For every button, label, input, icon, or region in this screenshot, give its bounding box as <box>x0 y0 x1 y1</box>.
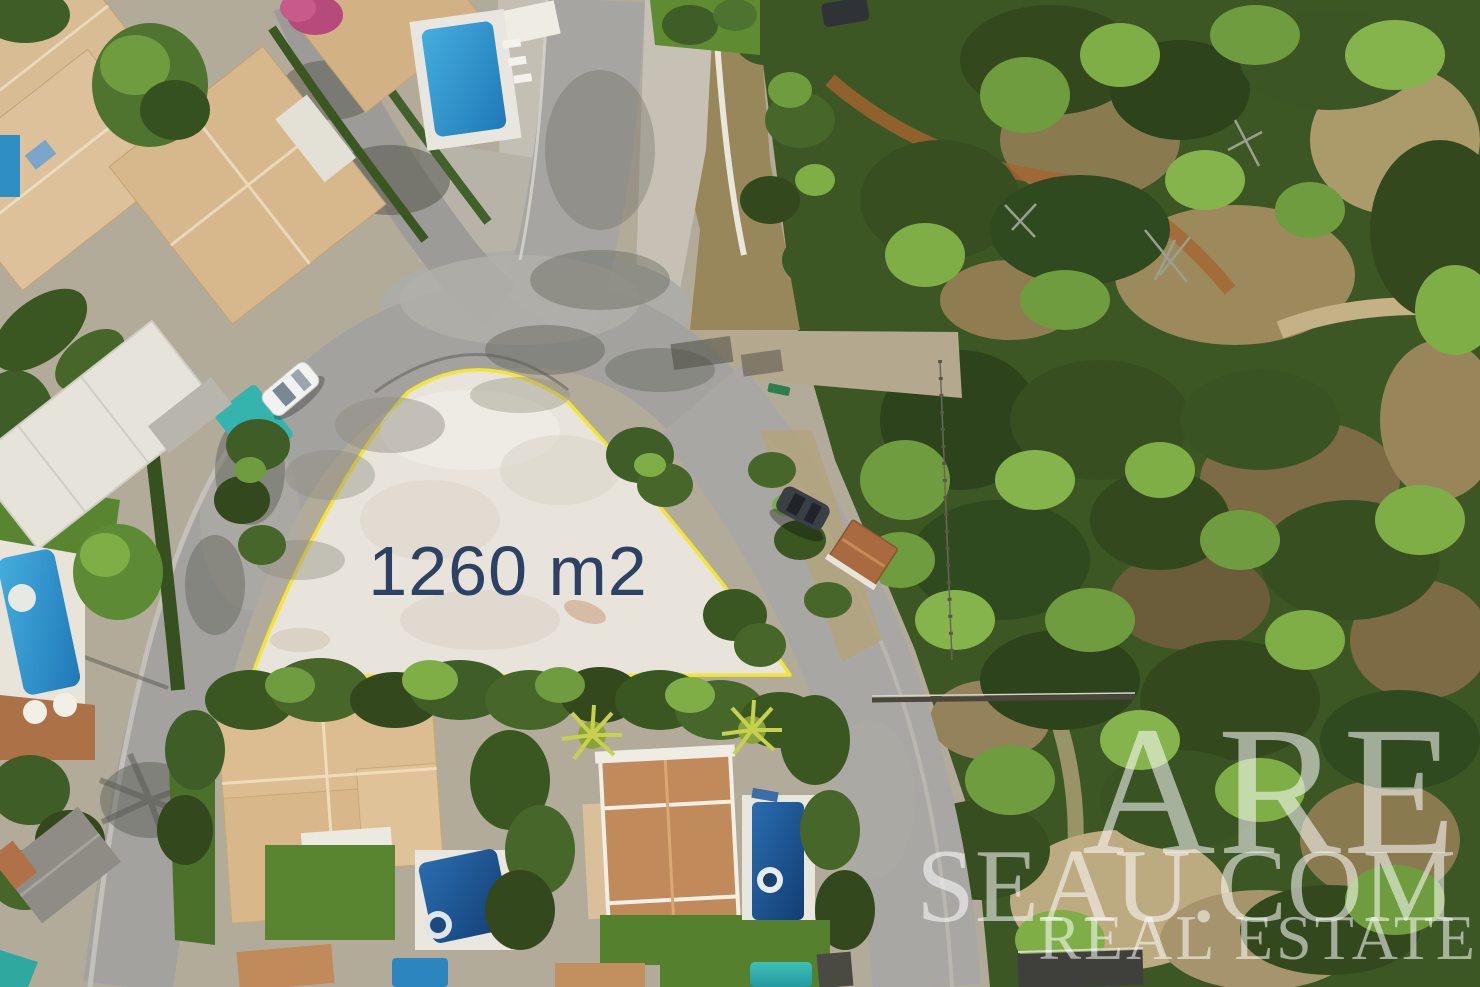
pool <box>742 788 815 930</box>
parasol <box>23 700 47 724</box>
parasol <box>8 584 36 612</box>
aerial-photo-canvas: 1260 m2 ARE SEAU.COM REAL ESTATE <box>0 0 1480 987</box>
pool <box>750 962 812 987</box>
parasol <box>53 693 77 717</box>
lawn <box>265 845 395 940</box>
watermark-line-3: REAL ESTATE <box>1038 902 1478 973</box>
plot-area-label: 1260 m2 <box>368 532 647 610</box>
villa-roof <box>555 963 645 987</box>
patio <box>0 695 95 760</box>
pool <box>0 135 20 197</box>
spa <box>430 917 446 933</box>
pool <box>392 958 448 987</box>
pool <box>0 540 85 712</box>
pergola-dark <box>817 952 854 987</box>
spa <box>763 873 777 887</box>
aerial-photo: 1260 m2 ARE SEAU.COM REAL ESTATE <box>0 0 1480 987</box>
